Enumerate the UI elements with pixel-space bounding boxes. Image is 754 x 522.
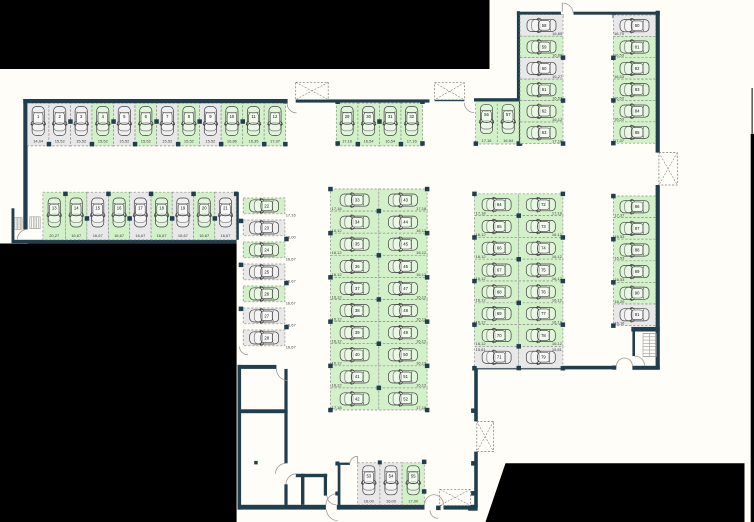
svg-text:16,12: 16,12 — [332, 272, 343, 277]
svg-text:15,52: 15,52 — [162, 139, 173, 144]
svg-text:17,00: 17,00 — [408, 499, 419, 504]
svg-text:46: 46 — [403, 264, 408, 269]
svg-text:16,12: 16,12 — [416, 294, 427, 299]
svg-text:24: 24 — [264, 247, 269, 252]
svg-text:14: 14 — [74, 206, 79, 211]
svg-text:16,67: 16,67 — [157, 233, 168, 238]
svg-text:51: 51 — [403, 374, 408, 379]
svg-text:10: 10 — [230, 114, 235, 119]
svg-text:42: 42 — [355, 396, 360, 401]
svg-text:67: 67 — [497, 268, 502, 273]
svg-text:16,67: 16,67 — [286, 301, 297, 306]
svg-text:16,12: 16,12 — [416, 383, 427, 388]
svg-text:55: 55 — [411, 473, 416, 478]
svg-text:17,18: 17,18 — [552, 210, 563, 215]
svg-text:15,81: 15,81 — [476, 347, 487, 352]
svg-text:15,52: 15,52 — [184, 139, 195, 144]
svg-text:47: 47 — [403, 286, 408, 291]
svg-text:85: 85 — [635, 130, 640, 135]
svg-text:17: 17 — [138, 206, 143, 211]
svg-text:22: 22 — [264, 203, 269, 208]
svg-text:16,86: 16,86 — [227, 139, 238, 144]
svg-text:16,67: 16,67 — [199, 233, 210, 238]
svg-text:16,12: 16,12 — [332, 361, 343, 366]
svg-text:16,12: 16,12 — [552, 254, 563, 259]
svg-text:15,52: 15,52 — [76, 139, 87, 144]
svg-text:16,75: 16,75 — [614, 31, 625, 36]
svg-text:77: 77 — [541, 311, 546, 316]
svg-text:58: 58 — [542, 23, 547, 28]
svg-text:21: 21 — [223, 206, 228, 211]
svg-text:15,52: 15,52 — [98, 139, 109, 144]
svg-text:90: 90 — [635, 291, 640, 296]
svg-text:74: 74 — [541, 246, 546, 251]
svg-text:16,54: 16,54 — [385, 139, 396, 144]
svg-text:68: 68 — [497, 289, 502, 294]
svg-text:26: 26 — [264, 291, 269, 296]
svg-text:16,53: 16,53 — [614, 95, 625, 100]
svg-text:16,12: 16,12 — [332, 228, 343, 233]
svg-text:52: 52 — [403, 396, 408, 401]
svg-text:23: 23 — [264, 225, 269, 230]
svg-text:48: 48 — [403, 308, 408, 313]
svg-text:17,18: 17,18 — [476, 210, 487, 215]
svg-text:16,35: 16,35 — [248, 139, 259, 144]
svg-text:13: 13 — [52, 206, 57, 211]
svg-text:16,53: 16,53 — [614, 234, 625, 239]
svg-text:38: 38 — [355, 308, 360, 313]
svg-text:65: 65 — [497, 224, 502, 229]
svg-text:17,18: 17,18 — [332, 206, 343, 211]
svg-text:89: 89 — [635, 269, 640, 274]
svg-text:83: 83 — [635, 87, 640, 92]
svg-text:14,04: 14,04 — [33, 139, 44, 144]
svg-text:25: 25 — [264, 269, 269, 274]
svg-text:54: 54 — [389, 473, 394, 478]
svg-text:16,12: 16,12 — [552, 117, 563, 122]
svg-text:16,67: 16,67 — [286, 257, 297, 262]
svg-text:16,53: 16,53 — [614, 256, 625, 261]
svg-text:17,16: 17,16 — [342, 139, 353, 144]
svg-text:40: 40 — [355, 352, 360, 357]
svg-text:82: 82 — [635, 66, 640, 71]
svg-text:29: 29 — [345, 114, 350, 119]
svg-text:16,53: 16,53 — [614, 74, 625, 79]
svg-text:12: 12 — [273, 114, 278, 119]
svg-text:16,12: 16,12 — [476, 276, 487, 281]
svg-text:16,67: 16,67 — [286, 345, 297, 350]
svg-text:61: 61 — [542, 87, 547, 92]
svg-text:86: 86 — [635, 204, 640, 209]
svg-text:78: 78 — [541, 333, 546, 338]
svg-text:53: 53 — [366, 473, 371, 478]
svg-text:39: 39 — [355, 330, 360, 335]
svg-text:16,12: 16,12 — [332, 294, 343, 299]
svg-text:87: 87 — [635, 226, 640, 231]
svg-text:11: 11 — [251, 114, 256, 119]
svg-text:17,37: 17,37 — [270, 139, 281, 144]
svg-text:36: 36 — [355, 264, 360, 269]
svg-text:37: 37 — [355, 286, 360, 291]
svg-text:17,16: 17,16 — [286, 213, 297, 218]
svg-text:17,37: 17,37 — [614, 212, 625, 217]
svg-text:16,12: 16,12 — [416, 250, 427, 255]
svg-text:17,37: 17,37 — [614, 138, 625, 143]
svg-text:72: 72 — [541, 202, 546, 207]
svg-text:16,53: 16,53 — [614, 117, 625, 122]
svg-text:28: 28 — [264, 335, 269, 340]
svg-text:16,12: 16,12 — [476, 298, 487, 303]
svg-text:69: 69 — [497, 311, 502, 316]
svg-text:15,52: 15,52 — [205, 139, 216, 144]
svg-text:16,53: 16,53 — [614, 53, 625, 58]
svg-text:16,67: 16,67 — [135, 233, 146, 238]
svg-text:75: 75 — [541, 268, 546, 273]
svg-text:20: 20 — [202, 206, 207, 211]
svg-text:16,65: 16,65 — [552, 31, 563, 36]
svg-text:16,12: 16,12 — [416, 339, 427, 344]
svg-text:16: 16 — [117, 206, 122, 211]
svg-text:15,52: 15,52 — [141, 139, 152, 144]
svg-text:16,27: 16,27 — [552, 74, 563, 79]
svg-text:56: 56 — [484, 112, 489, 117]
svg-text:60: 60 — [542, 66, 547, 71]
svg-text:35: 35 — [355, 242, 360, 247]
svg-text:27: 27 — [264, 313, 269, 318]
svg-text:17,18: 17,18 — [416, 206, 427, 211]
svg-text:57: 57 — [506, 112, 511, 117]
svg-text:15,52: 15,52 — [55, 139, 66, 144]
svg-text:63: 63 — [542, 130, 547, 135]
svg-text:16,54: 16,54 — [364, 139, 375, 144]
svg-text:64: 64 — [497, 202, 502, 207]
svg-text:16,20: 16,20 — [614, 299, 625, 304]
svg-text:20,27: 20,27 — [49, 233, 60, 238]
svg-text:45: 45 — [403, 242, 408, 247]
svg-text:16,12: 16,12 — [476, 319, 487, 324]
svg-text:16,16: 16,16 — [614, 320, 625, 325]
svg-text:16,12: 16,12 — [476, 341, 487, 346]
svg-text:79: 79 — [541, 355, 546, 360]
svg-text:81: 81 — [635, 44, 640, 49]
svg-text:33: 33 — [355, 198, 360, 203]
svg-text:16,67: 16,67 — [93, 233, 104, 238]
svg-text:66: 66 — [497, 246, 502, 251]
svg-text:41: 41 — [355, 374, 360, 379]
svg-text:76: 76 — [541, 289, 546, 294]
svg-text:16,12: 16,12 — [332, 339, 343, 344]
svg-text:91: 91 — [635, 312, 640, 317]
svg-text:62: 62 — [542, 109, 547, 114]
svg-text:16,12: 16,12 — [552, 298, 563, 303]
svg-text:16,12: 16,12 — [552, 341, 563, 346]
svg-text:44: 44 — [403, 220, 408, 225]
svg-text:16,67: 16,67 — [178, 233, 189, 238]
svg-text:34: 34 — [355, 220, 360, 225]
svg-text:15,81: 15,81 — [552, 347, 563, 352]
svg-text:16,12: 16,12 — [332, 250, 343, 255]
svg-text:80: 80 — [635, 23, 640, 28]
svg-text:16,12: 16,12 — [332, 316, 343, 321]
svg-text:16,12: 16,12 — [476, 254, 487, 259]
svg-text:16,67: 16,67 — [114, 233, 125, 238]
svg-text:84: 84 — [635, 109, 640, 114]
svg-text:17,16: 17,16 — [407, 139, 418, 144]
svg-text:16,67: 16,67 — [71, 233, 82, 238]
svg-text:88: 88 — [635, 247, 640, 252]
svg-text:15,52: 15,52 — [119, 139, 130, 144]
svg-text:31: 31 — [388, 114, 393, 119]
svg-text:59: 59 — [542, 44, 547, 49]
svg-text:70: 70 — [497, 333, 502, 338]
svg-text:16,12: 16,12 — [332, 383, 343, 388]
svg-text:16,00: 16,00 — [364, 499, 375, 504]
svg-text:49: 49 — [403, 330, 408, 335]
svg-text:73: 73 — [541, 224, 546, 229]
svg-text:50: 50 — [403, 352, 408, 357]
svg-text:16,53: 16,53 — [614, 277, 625, 282]
svg-text:16,12: 16,12 — [476, 232, 487, 237]
svg-text:18: 18 — [159, 206, 164, 211]
svg-text:71: 71 — [497, 355, 502, 360]
svg-text:16,00: 16,00 — [386, 499, 397, 504]
svg-text:30: 30 — [366, 114, 371, 119]
svg-text:17,16: 17,16 — [481, 138, 492, 143]
svg-text:43: 43 — [403, 198, 408, 203]
svg-text:16,67: 16,67 — [220, 233, 231, 238]
svg-text:17,18: 17,18 — [332, 405, 343, 410]
svg-text:32: 32 — [409, 114, 414, 119]
svg-text:15: 15 — [95, 206, 100, 211]
svg-text:19: 19 — [181, 206, 186, 211]
svg-text:16,54: 16,54 — [503, 138, 514, 143]
